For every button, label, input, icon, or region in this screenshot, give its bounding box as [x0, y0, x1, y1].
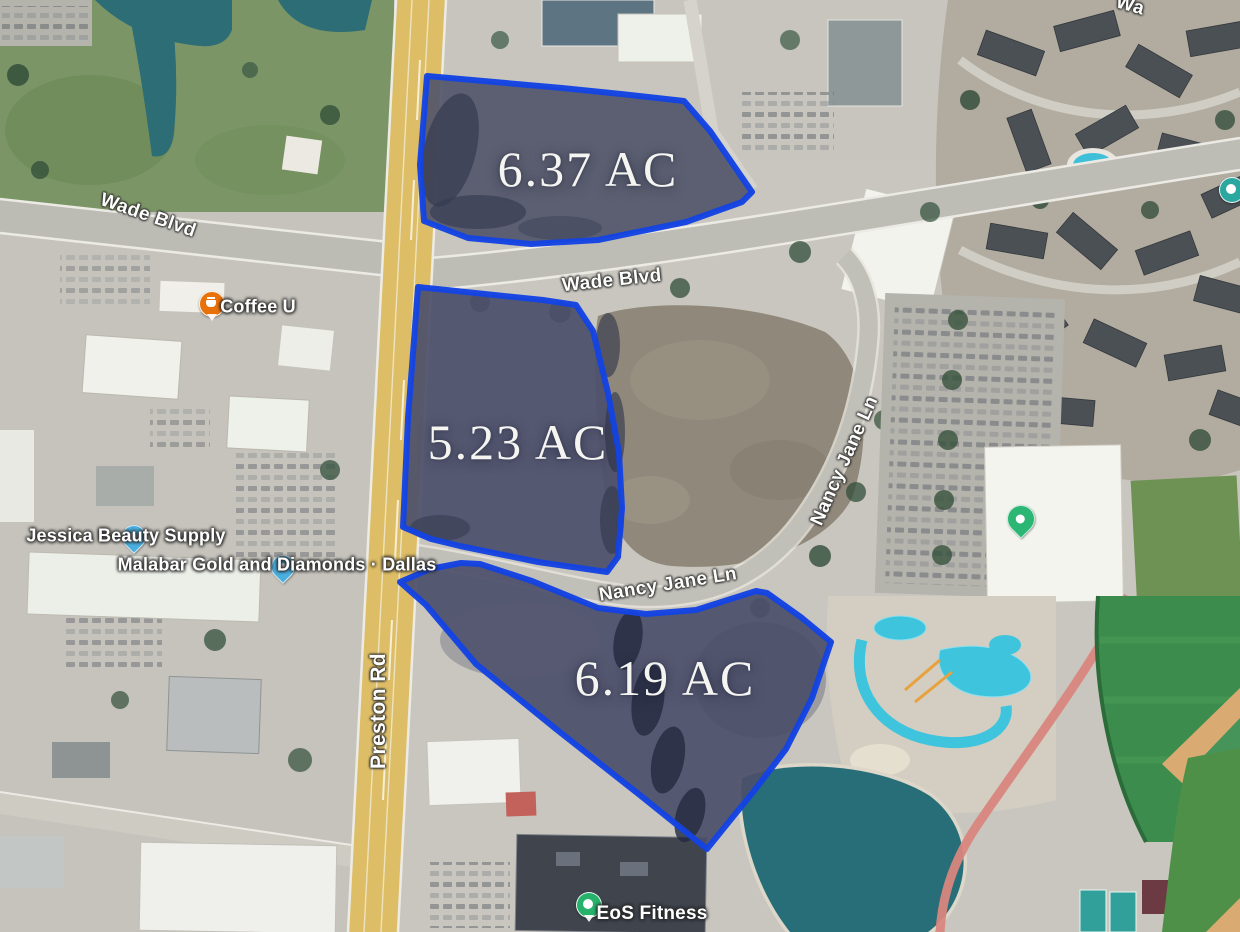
- jessica-beauty-supply-label[interactable]: Jessica Beauty Supply: [26, 526, 225, 547]
- parcel-3-area-label: 6.19 AC: [575, 649, 756, 707]
- parcel-1-area-label: 6.37 AC: [498, 140, 679, 198]
- street-label-preston-rd: Preston Rd: [367, 653, 391, 769]
- eos-fitness-label[interactable]: EoS Fitness: [597, 903, 708, 925]
- coffee-cup-icon: [206, 300, 216, 307]
- parcel-2-area-label: 5.23 AC: [428, 413, 609, 471]
- malabar-label[interactable]: Malabar Gold and Diamonds · Dallas: [118, 555, 437, 576]
- park-west: [0, 0, 394, 212]
- coffee-u-label[interactable]: Coffee U: [220, 297, 296, 318]
- satellite-map[interactable]: 6.37 AC 5.23 AC 6.19 AC Wade Blvd Wade B…: [0, 0, 1240, 932]
- green-field-east: [1131, 475, 1240, 610]
- place-pin-icon: [1219, 177, 1240, 203]
